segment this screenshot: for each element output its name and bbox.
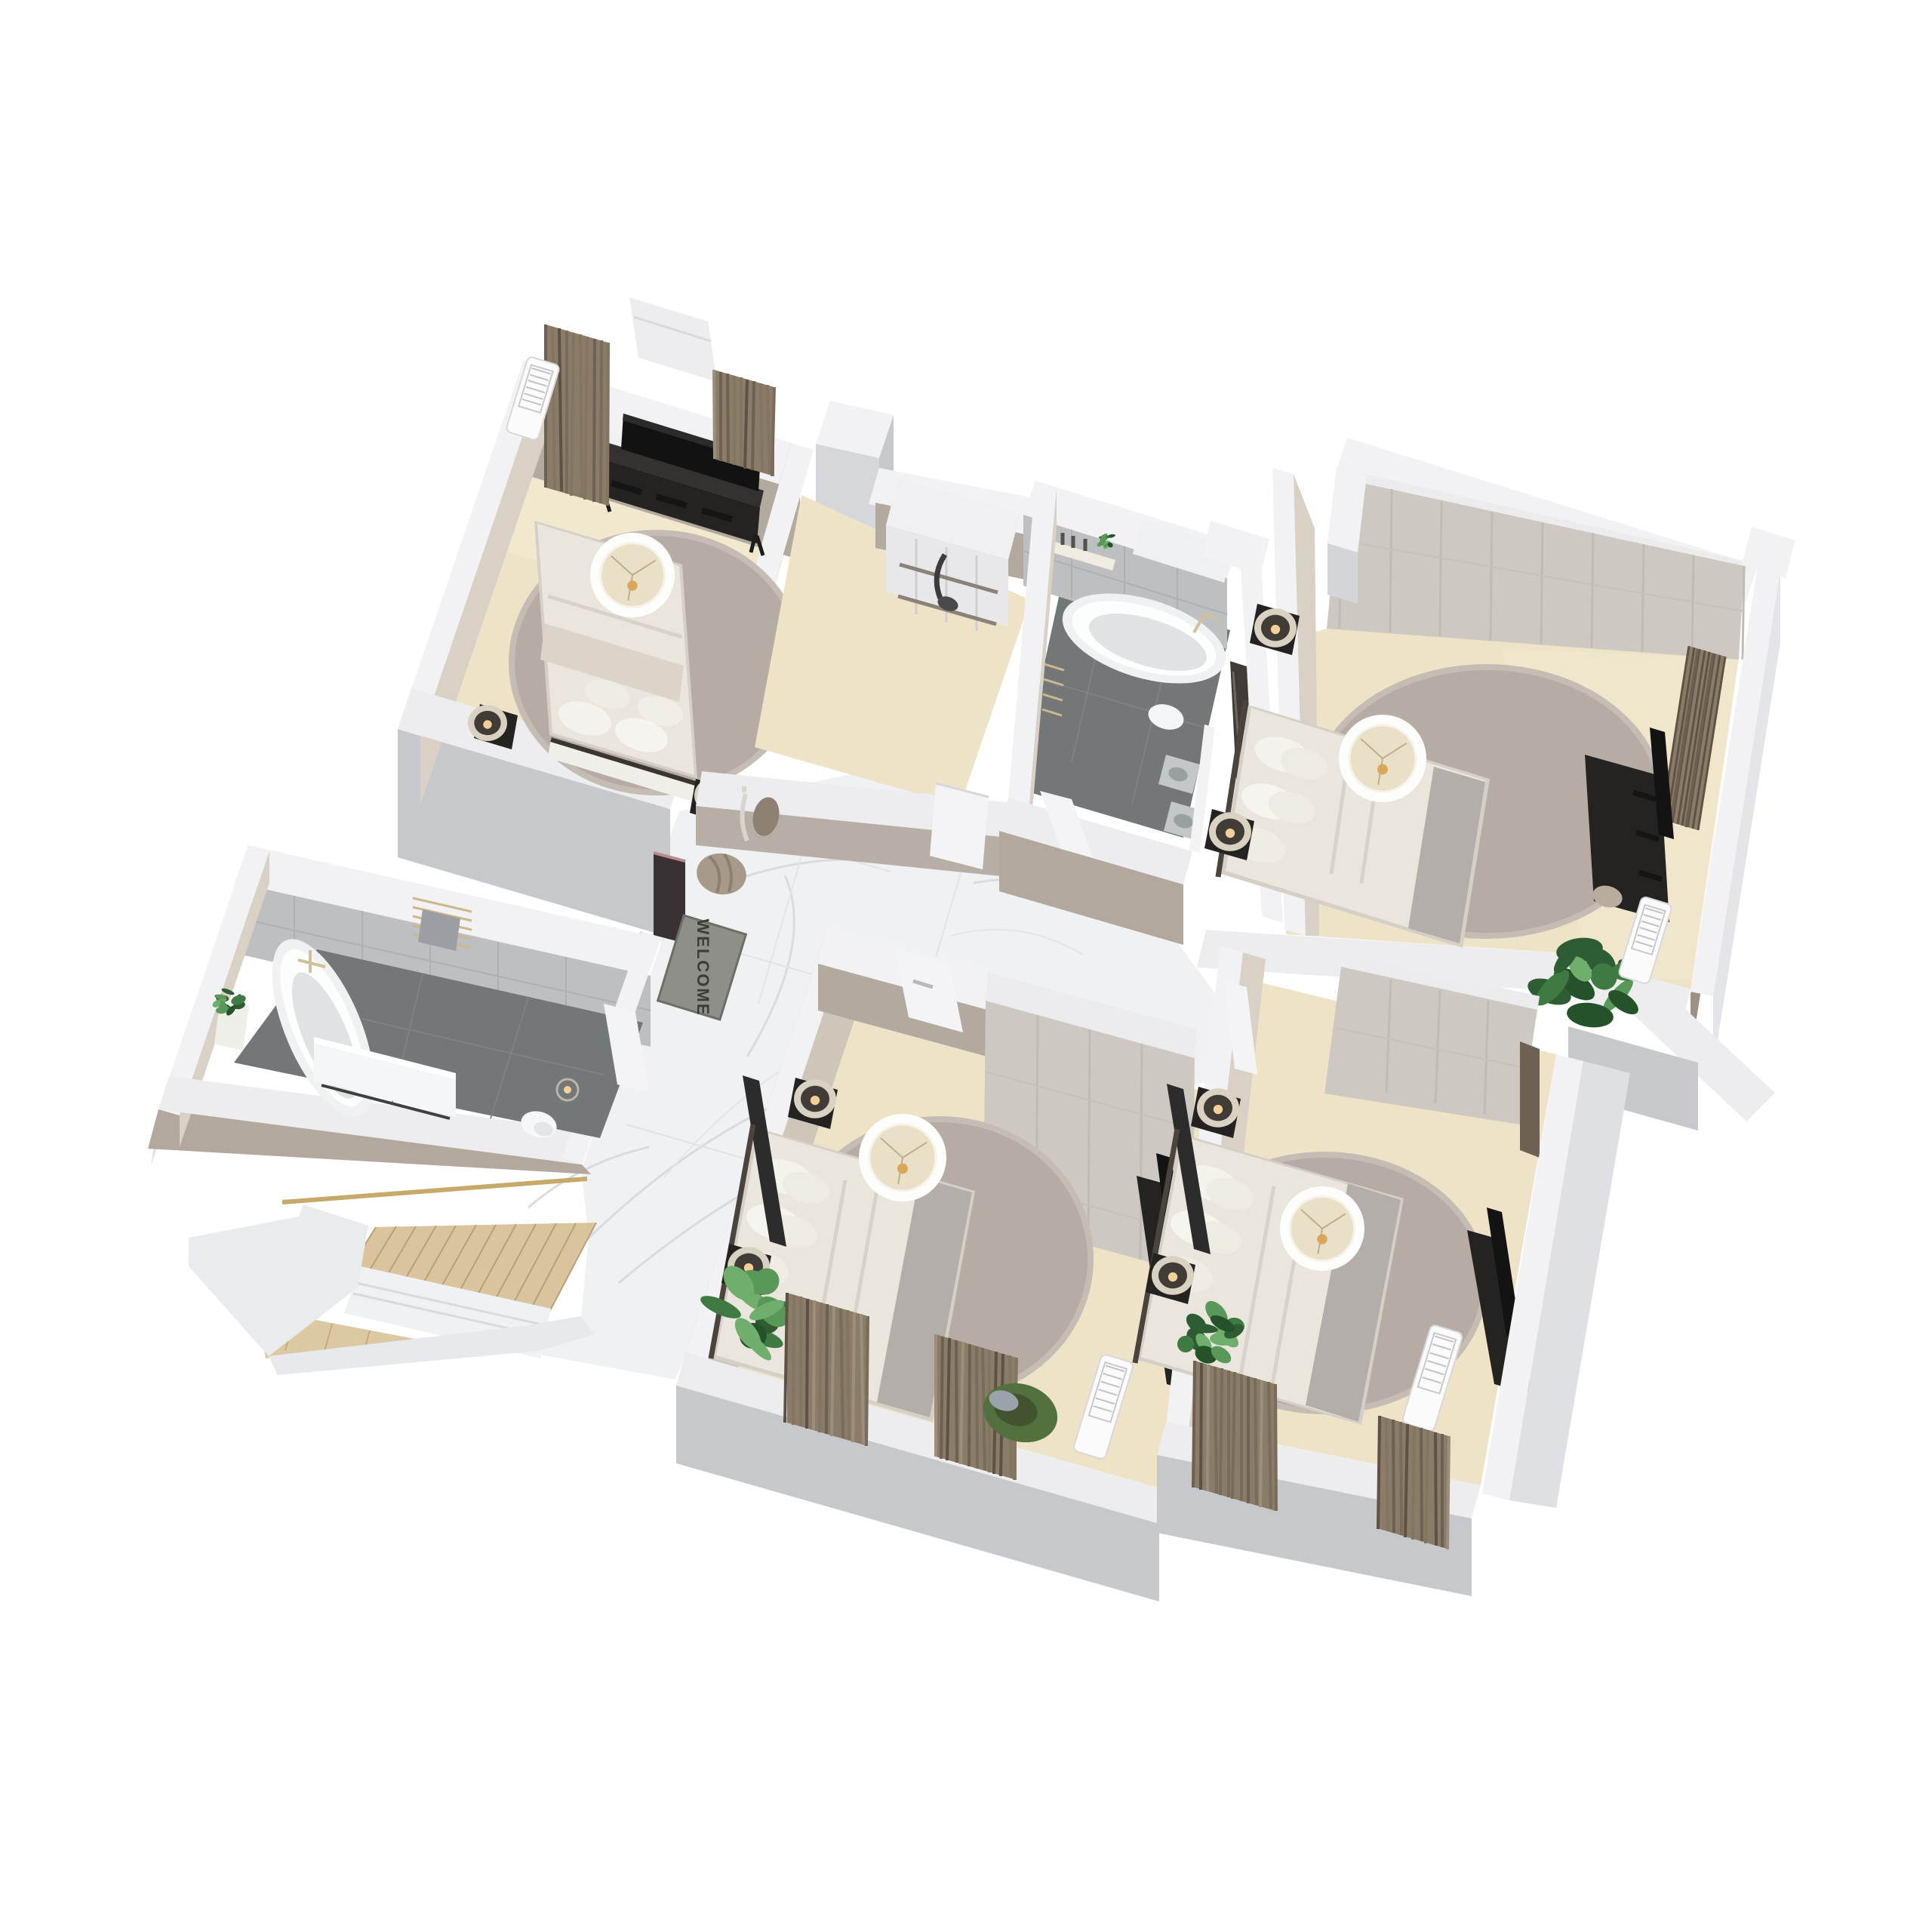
svg-text:WELCOME: WELCOME	[694, 919, 712, 1017]
